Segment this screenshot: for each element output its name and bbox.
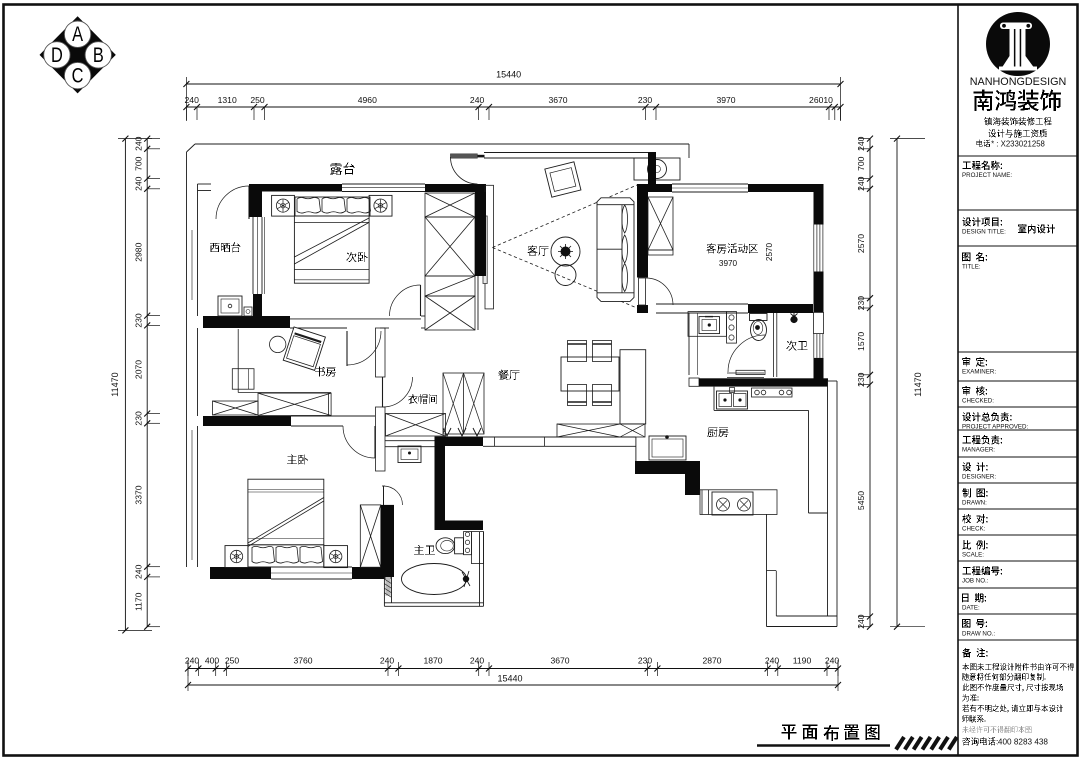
svg-text:700: 700: [134, 156, 144, 171]
svg-text:1310: 1310: [218, 95, 237, 105]
svg-text:11470: 11470: [913, 372, 923, 396]
svg-text:230: 230: [638, 656, 653, 666]
svg-text:CHECKED:: CHECKED:: [962, 398, 994, 405]
svg-text:D: D: [51, 43, 63, 66]
svg-text:15440: 15440: [497, 674, 522, 684]
svg-text:DATE:: DATE:: [962, 605, 980, 612]
svg-text:230: 230: [638, 95, 653, 105]
svg-text:240: 240: [185, 95, 200, 105]
svg-text:PROJECT APPROVED:: PROJECT APPROVED:: [962, 424, 1029, 431]
svg-text:C: C: [72, 64, 84, 87]
svg-text:230: 230: [856, 372, 866, 387]
svg-text:240: 240: [470, 656, 485, 666]
svg-text:3670: 3670: [548, 95, 567, 105]
svg-text:EXAMINER:: EXAMINER:: [962, 369, 996, 376]
svg-text:400: 400: [205, 656, 220, 666]
svg-text:230: 230: [856, 296, 866, 311]
svg-text:240: 240: [380, 656, 395, 666]
svg-text:240: 240: [134, 564, 144, 579]
svg-text:240: 240: [470, 95, 485, 105]
svg-text:15440: 15440: [496, 70, 521, 80]
svg-text:SCALE:: SCALE:: [962, 552, 984, 559]
svg-text:230: 230: [134, 313, 144, 328]
svg-text:250: 250: [225, 656, 240, 666]
svg-text:3760: 3760: [293, 656, 312, 666]
svg-text:4960: 4960: [358, 95, 377, 105]
svg-text:DESIGNER:: DESIGNER:: [962, 474, 996, 481]
svg-text:400 8283 438: 400 8283 438: [998, 738, 1049, 747]
svg-text:2980: 2980: [134, 242, 144, 261]
svg-text:5450: 5450: [856, 491, 866, 510]
svg-text:NANHONGDESIGN: NANHONGDESIGN: [970, 76, 1067, 88]
svg-text:3970: 3970: [716, 95, 735, 105]
svg-text:2870: 2870: [702, 656, 721, 666]
svg-text:700: 700: [856, 156, 866, 171]
svg-text:240: 240: [856, 136, 866, 151]
svg-text:250: 250: [250, 95, 265, 105]
svg-text:240: 240: [825, 656, 840, 666]
svg-text:1570: 1570: [856, 332, 866, 351]
svg-text:DRAW NO.:: DRAW NO.:: [962, 631, 995, 638]
svg-text:1190: 1190: [793, 656, 812, 666]
svg-text:240: 240: [856, 176, 866, 191]
svg-text:240: 240: [134, 176, 144, 191]
svg-text:1870: 1870: [423, 656, 442, 666]
svg-text:240: 240: [856, 614, 866, 629]
svg-text:230: 230: [134, 411, 144, 426]
svg-text:PROJECT NAME:: PROJECT NAME:: [962, 172, 1012, 179]
svg-text:* : X233021258: * : X233021258: [991, 140, 1045, 149]
svg-text:26010: 26010: [809, 95, 833, 105]
svg-text:3370: 3370: [134, 485, 144, 504]
svg-text:240: 240: [765, 656, 780, 666]
svg-text:TITLE:: TITLE:: [962, 264, 981, 271]
svg-text:DRAWN:: DRAWN:: [962, 500, 987, 507]
svg-text:1170: 1170: [134, 592, 144, 611]
svg-text:240: 240: [185, 656, 200, 666]
svg-text:11470: 11470: [110, 372, 120, 396]
svg-text:JOB NO.:: JOB NO.:: [962, 578, 989, 585]
svg-text:2570: 2570: [765, 242, 774, 261]
svg-text:3670: 3670: [550, 656, 569, 666]
svg-text:3970: 3970: [719, 259, 738, 268]
svg-text:240: 240: [134, 136, 144, 151]
svg-text:B: B: [93, 43, 104, 66]
svg-text:2570: 2570: [856, 234, 866, 253]
svg-text:MANAGER:: MANAGER:: [962, 447, 995, 454]
svg-text:DESIGN TITLE:: DESIGN TITLE:: [962, 229, 1006, 236]
svg-text:A: A: [72, 22, 83, 45]
svg-text:2070: 2070: [134, 360, 144, 379]
svg-text:CHECK:: CHECK:: [962, 526, 986, 533]
